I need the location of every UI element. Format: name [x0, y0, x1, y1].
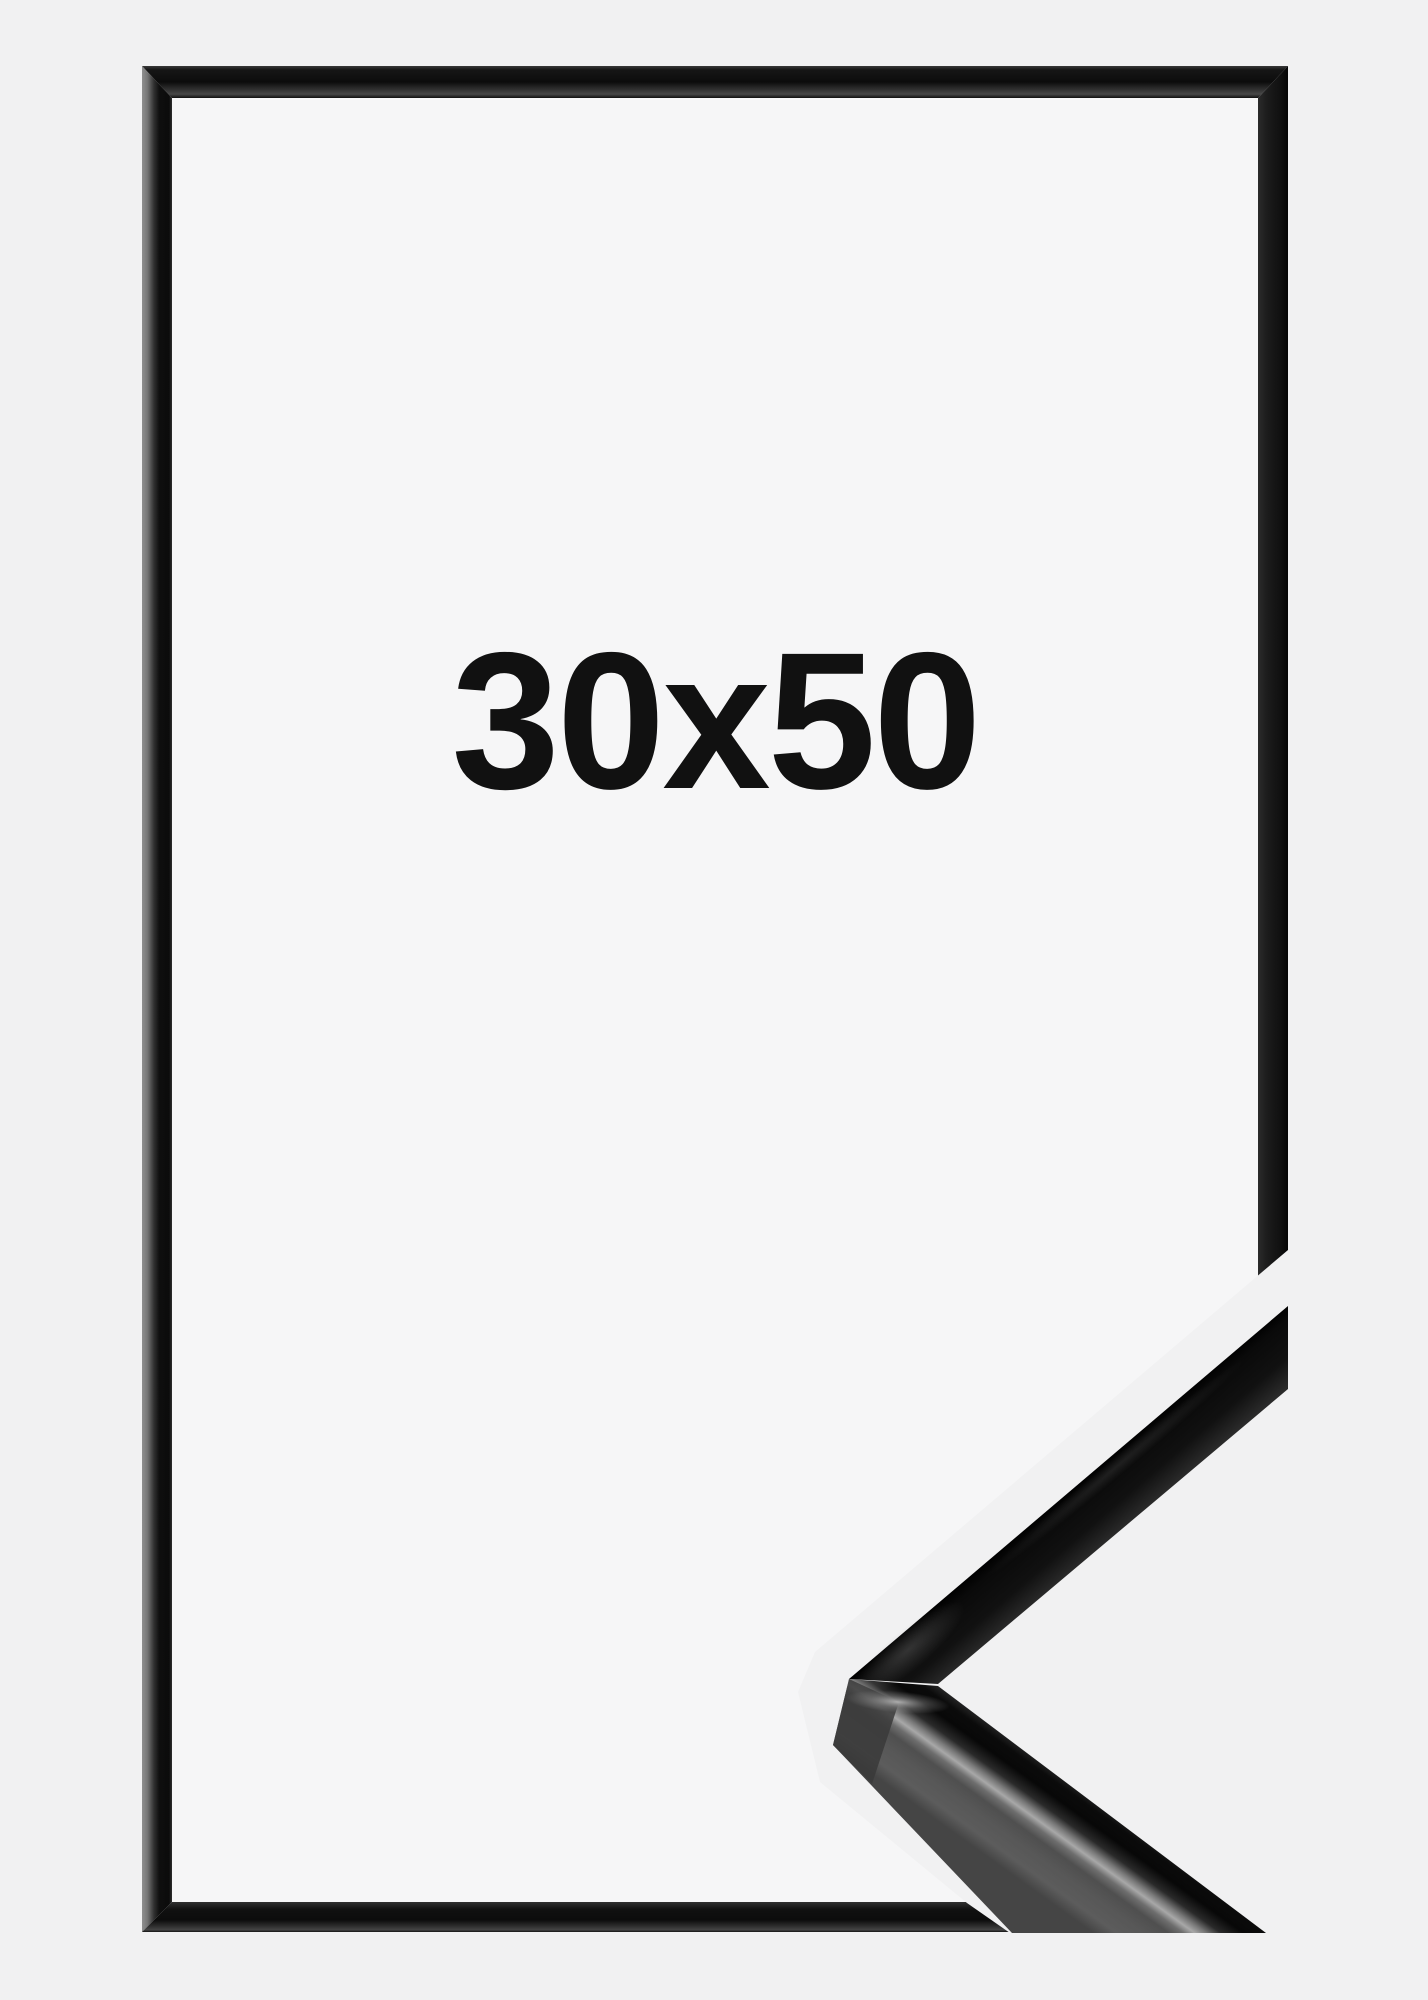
- frame-top-bar: [142, 66, 1288, 98]
- frame-product-photo: 30x50: [0, 0, 1428, 2000]
- product-image-canvas: 30x50: [0, 0, 1428, 2000]
- size-label: 30x50: [451, 612, 978, 830]
- frame-left-bar: [142, 66, 172, 1932]
